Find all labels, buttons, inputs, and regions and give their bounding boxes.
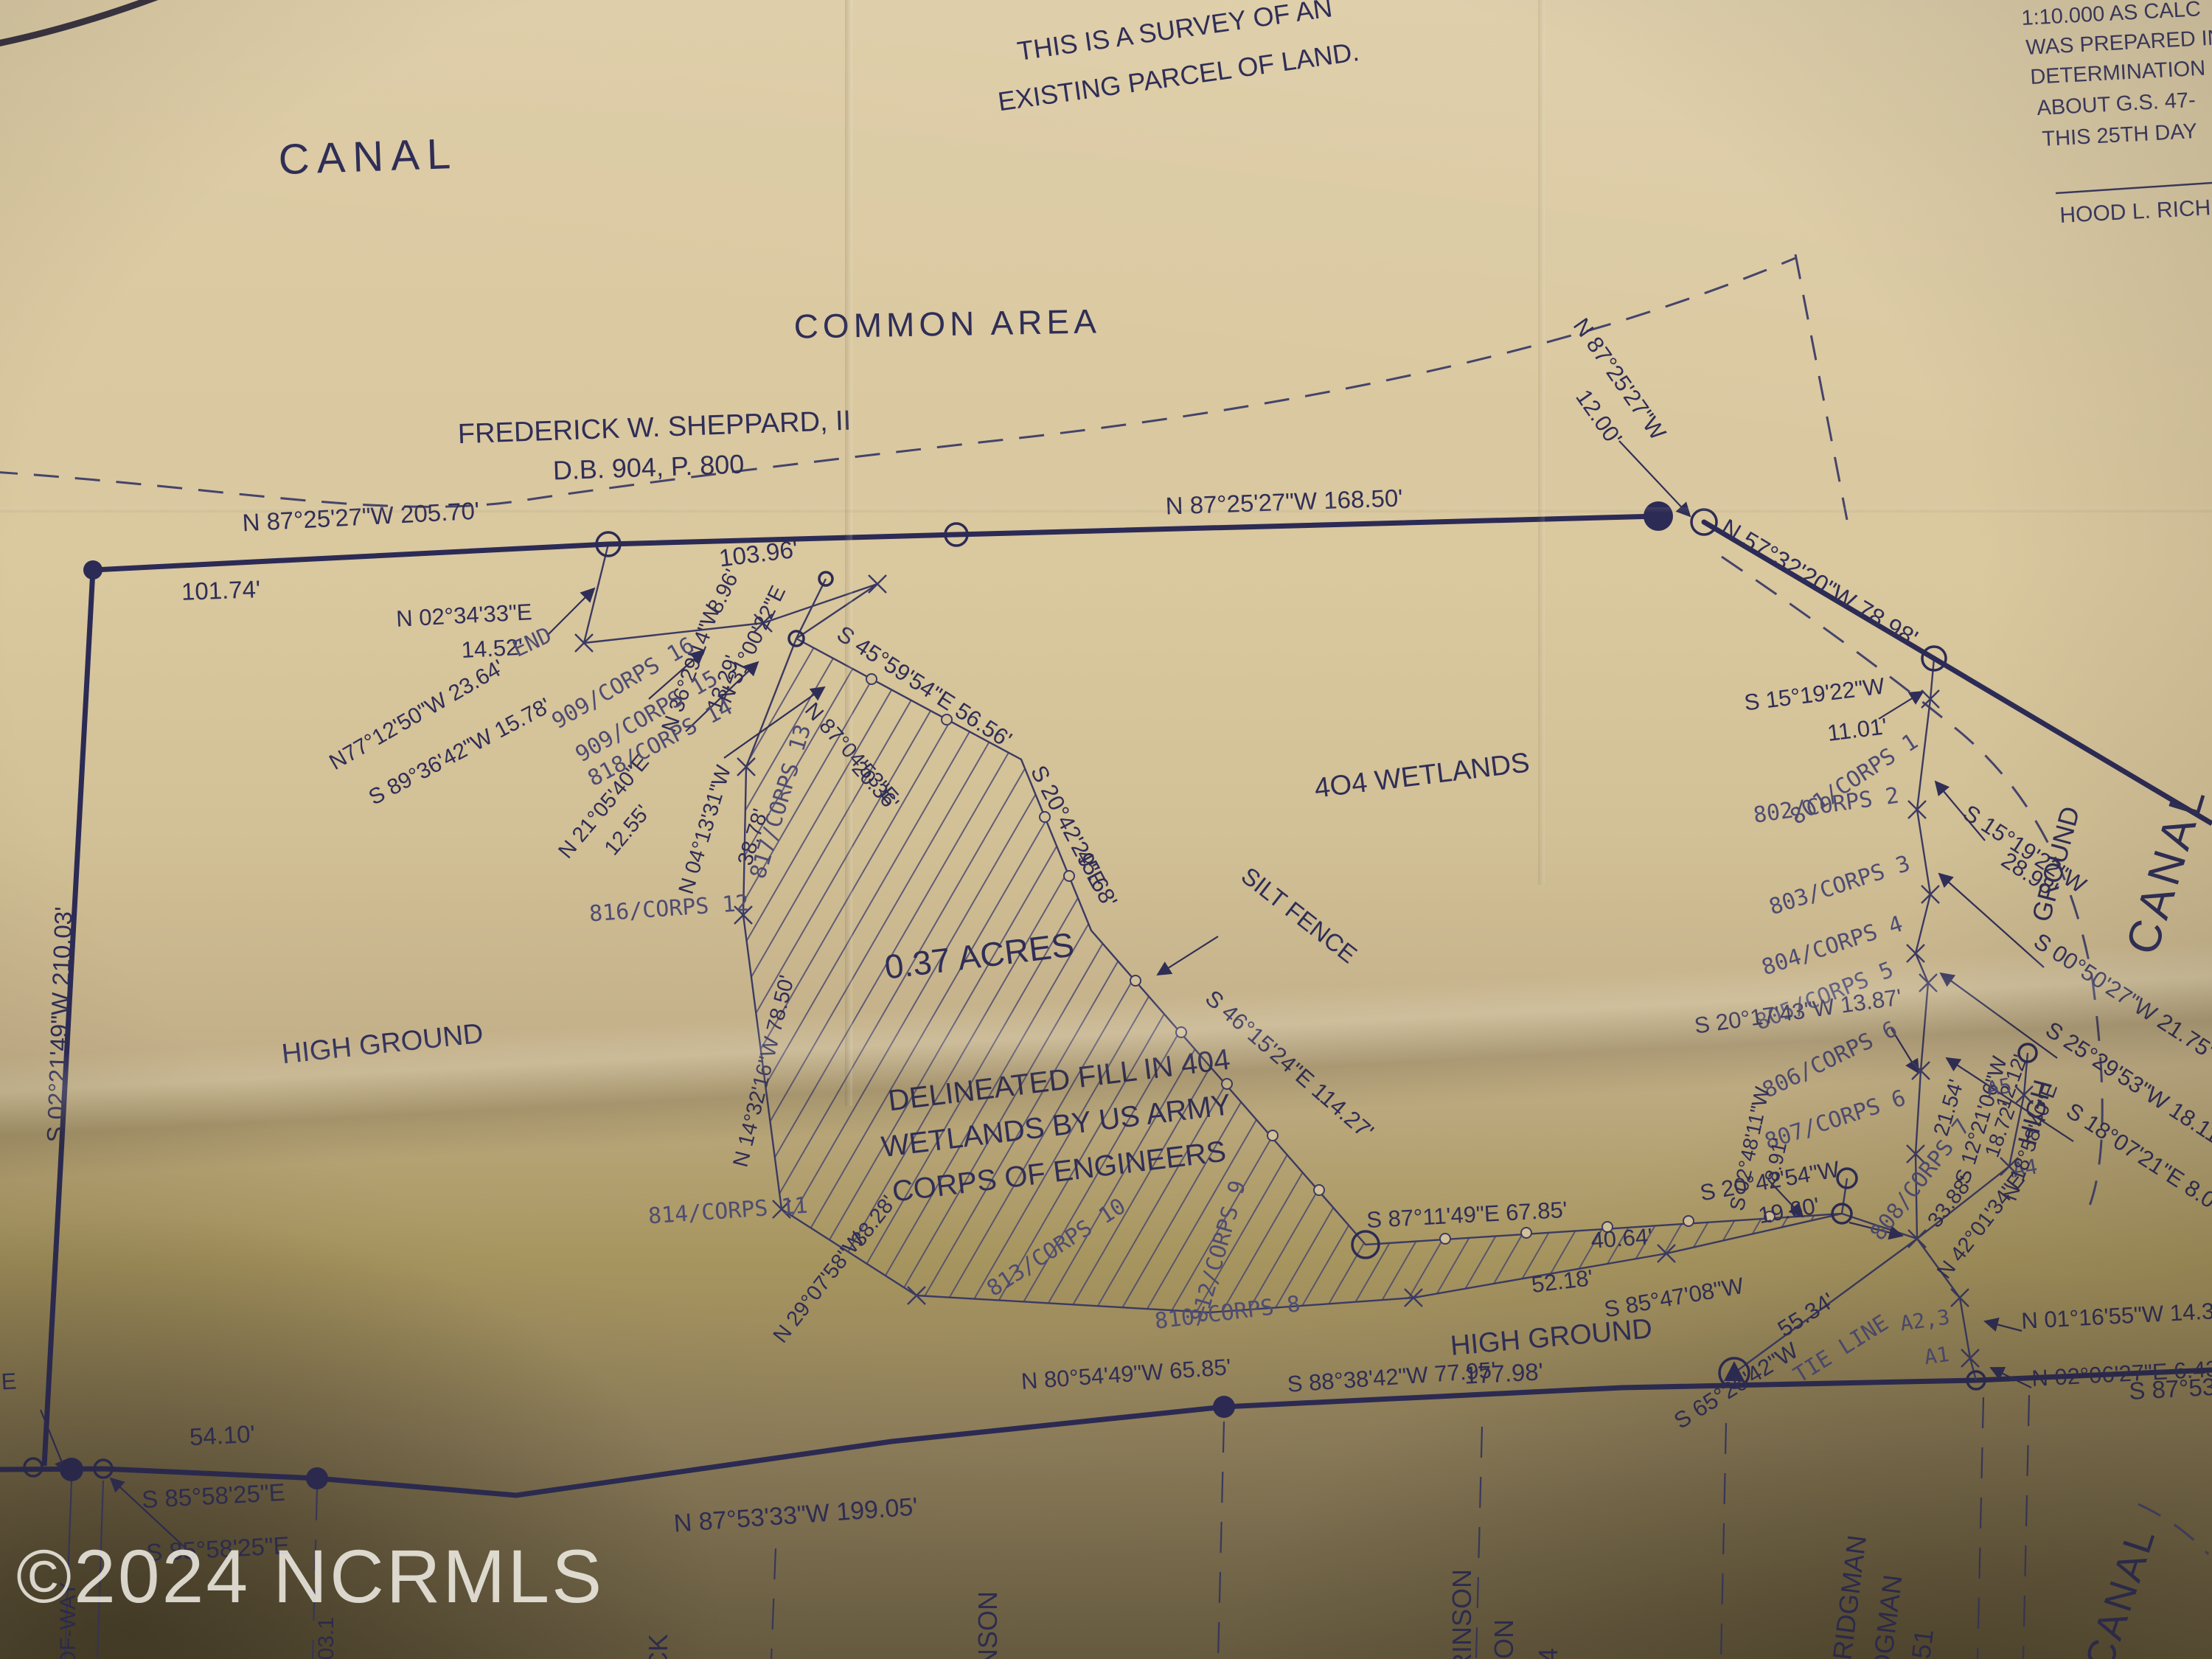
corps-3-label: 803/CORPS 3 bbox=[1766, 851, 1913, 921]
bearing-n8753-bottom: N 87°53'33"W 199.05' bbox=[672, 1493, 918, 1538]
corps-12-label: 816/CORPS 12 bbox=[588, 891, 750, 928]
dist-103-1: 103.1 bbox=[314, 1617, 338, 1659]
bearing-n8054: N 80°54'49"W 65.85' bbox=[1020, 1354, 1232, 1394]
cert-line-1: 1:10.000 AS CALC bbox=[2021, 0, 2202, 30]
owner-nson-partial-2: NSON bbox=[1489, 1619, 1519, 1659]
cert-line-5: THIS 25TH DAY bbox=[2042, 119, 2198, 151]
bearing-top-205: N 87°25'27"W 205.70' bbox=[242, 497, 480, 537]
owner-bridgman: BRIDGMAN bbox=[1860, 1573, 1907, 1659]
owner-ck-partial: CK bbox=[643, 1634, 673, 1659]
owner-nson-partial-1: NSON bbox=[973, 1591, 1003, 1659]
corps-11-label: 814/CORPS 11 bbox=[647, 1193, 809, 1230]
bearing-s8558-1: S 85°58'25"E bbox=[141, 1478, 285, 1513]
bearing-n04: N 04°13'31"W bbox=[675, 762, 737, 897]
plat-drawing: CANALTHIS IS A SURVEY OF ANEXISTING PARC… bbox=[0, 0, 2212, 1659]
bottom-reference-lines bbox=[65, 1395, 2029, 1659]
bearing-s1519a: S 15°19'22"W bbox=[1743, 672, 1887, 715]
high-ground-left: HIGH GROUND bbox=[280, 1018, 484, 1070]
photo-edge-line bbox=[0, 0, 161, 44]
canal-label-top-left: CANAL bbox=[278, 130, 459, 184]
canal-label-bottom-right: CANAL bbox=[2076, 1521, 2164, 1659]
canal-label-right: CANAL bbox=[2117, 779, 2212, 961]
dist-19-60: 19.60' bbox=[1756, 1192, 1821, 1228]
partial-bearing-left-edge: 5"E bbox=[0, 1368, 17, 1396]
owner-sheppard: FREDERICK W. SHEPPARD, II bbox=[457, 406, 852, 451]
bearing-s8558-2: S 85°58'25"E bbox=[145, 1531, 290, 1566]
dist-11-01: 11.01' bbox=[1826, 713, 1888, 746]
cert-line-2: WAS PREPARED IN bbox=[2025, 26, 2212, 60]
dist-40-64: 40.64' bbox=[1590, 1223, 1653, 1253]
bearing-n2907: N 29°07'58"W bbox=[769, 1228, 870, 1347]
point-a5-label: A5 bbox=[1985, 1073, 2014, 1101]
owner-sheppard-deed: D.B. 904, P. 800 bbox=[552, 448, 745, 485]
surveyor-name: HOOD L. RICH bbox=[2059, 195, 2211, 228]
owner-brinson: BRINSON bbox=[1447, 1569, 1477, 1659]
bearing-s89: S 89°36'42"W 15.78' bbox=[365, 694, 555, 810]
bearing-s8547: S 85°47'08"W bbox=[1602, 1273, 1746, 1323]
bearing-s0221-left: S 02°21'49"W 210.03' bbox=[41, 906, 77, 1143]
bearing-n77: N77°12'50"W 23.64' bbox=[325, 655, 508, 775]
dist-101-74: 101.74' bbox=[181, 575, 260, 605]
point-a23-label: A2,3 bbox=[1899, 1305, 1951, 1336]
high-ground-bottom: HIGH GROUND bbox=[1449, 1313, 1653, 1362]
right-of-way-label: OF-WAY bbox=[56, 1582, 80, 1659]
deed-p751: P. 751 bbox=[1900, 1627, 1939, 1659]
bearing-s8711: S 87°11'49"E 67.85' bbox=[1366, 1197, 1568, 1233]
dist-177-98: 177.98' bbox=[1464, 1357, 1544, 1389]
cert-line-4: ABOUT G.S. 47- bbox=[2037, 88, 2197, 120]
owner-b-bridgman: B. BRIDGMAN bbox=[1820, 1534, 1872, 1659]
dist-55-34: 55.34' bbox=[1773, 1287, 1839, 1342]
corps-6-label: 806/CORPS 6 bbox=[1759, 1016, 1902, 1104]
cert-line-3: DETERMINATION O bbox=[2030, 55, 2212, 89]
wetlands-404-label: 4O4 WETLANDS bbox=[1312, 747, 1531, 804]
silt-fence-label: SILT FENCE bbox=[1237, 862, 1363, 969]
bearing-n0234: N 02°34'33"E bbox=[395, 599, 532, 632]
signature-line bbox=[2056, 183, 2212, 193]
deed-584: 584 bbox=[1533, 1648, 1563, 1659]
common-area-label: COMMON AREA bbox=[793, 302, 1101, 345]
bearing-s8753-right: S 87°53' bbox=[2128, 1373, 2212, 1405]
bearing-n57: N 57°32'20"W 78.98' bbox=[1717, 513, 1922, 652]
plat-labels: CANALTHIS IS A SURVEY OF ANEXISTING PARC… bbox=[0, 0, 2212, 1659]
bearing-n0116: N 01°16'55"W 14.35' bbox=[2021, 1297, 2212, 1334]
survey-plat-photo: CANALTHIS IS A SURVEY OF ANEXISTING PARC… bbox=[0, 0, 2212, 1659]
dist-54-10: 54.10' bbox=[189, 1420, 256, 1451]
bearing-top-168: N 87°25'27"W 168.50' bbox=[1165, 484, 1403, 519]
point-a1-label: A1 bbox=[1923, 1342, 1951, 1369]
